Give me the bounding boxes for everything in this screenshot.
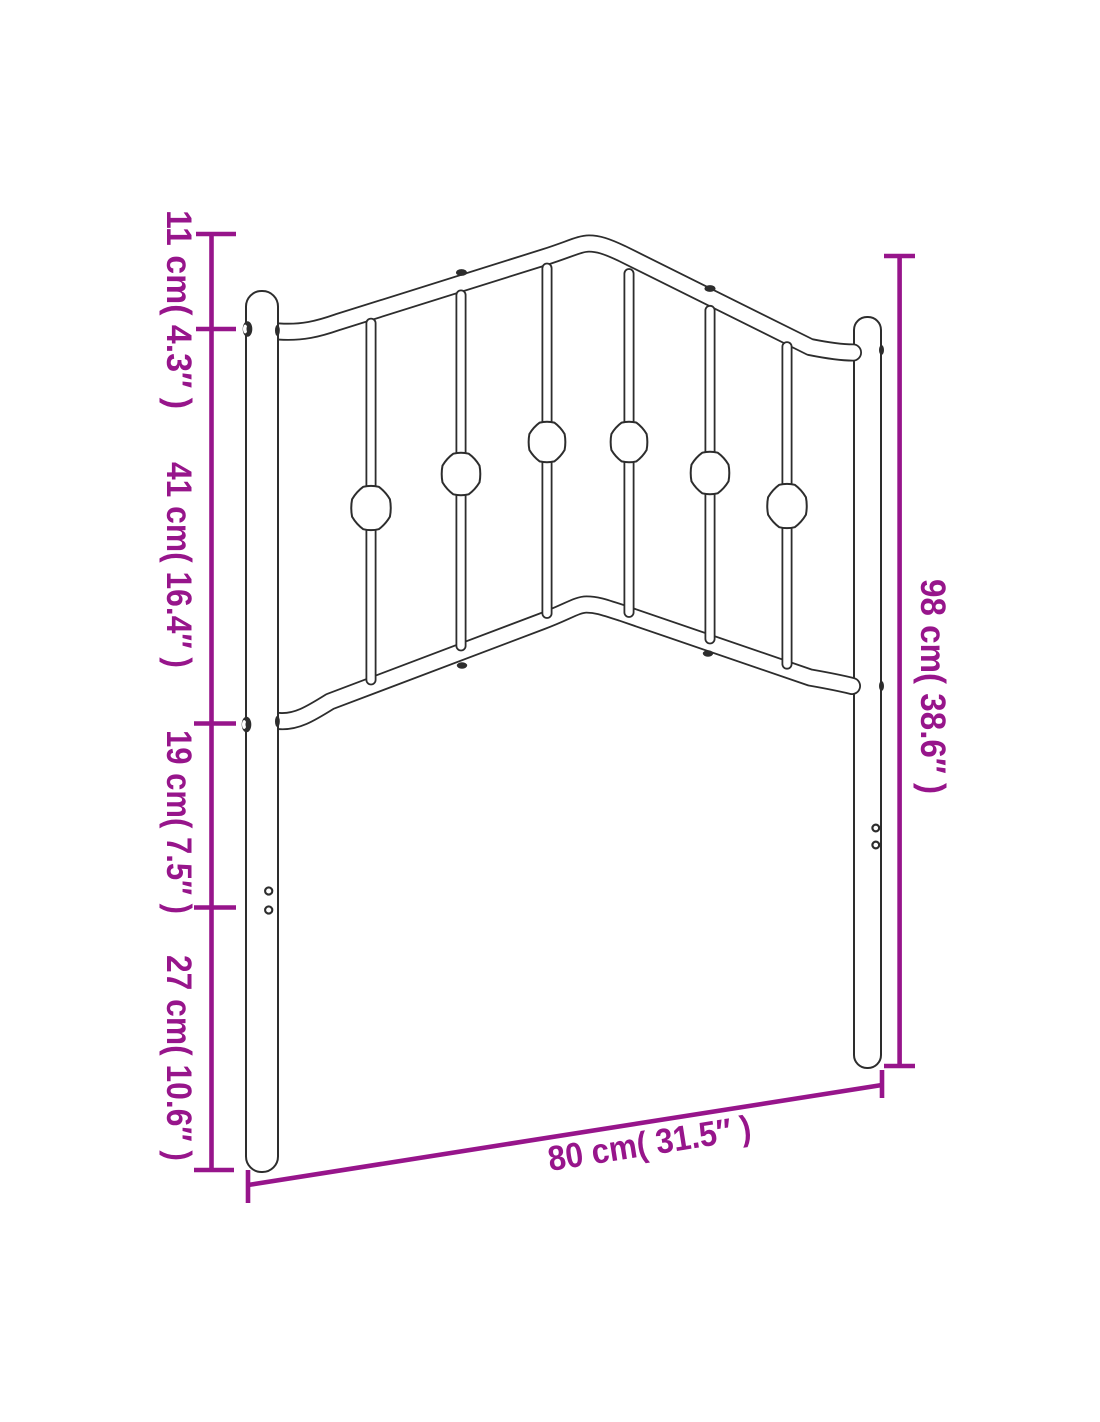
svg-text:98 cm( 38.6″ ): 98 cm( 38.6″ ): [913, 579, 952, 794]
svg-text:19 cm( 7.5″ ): 19 cm( 7.5″ ): [159, 730, 198, 914]
svg-text:11 cm( 4.3″ ): 11 cm( 4.3″ ): [159, 210, 198, 409]
svg-text:41 cm( 16.4″ ): 41 cm( 16.4″ ): [159, 462, 198, 668]
svg-text:27 cm( 10.6″ ): 27 cm( 10.6″ ): [159, 955, 198, 1161]
